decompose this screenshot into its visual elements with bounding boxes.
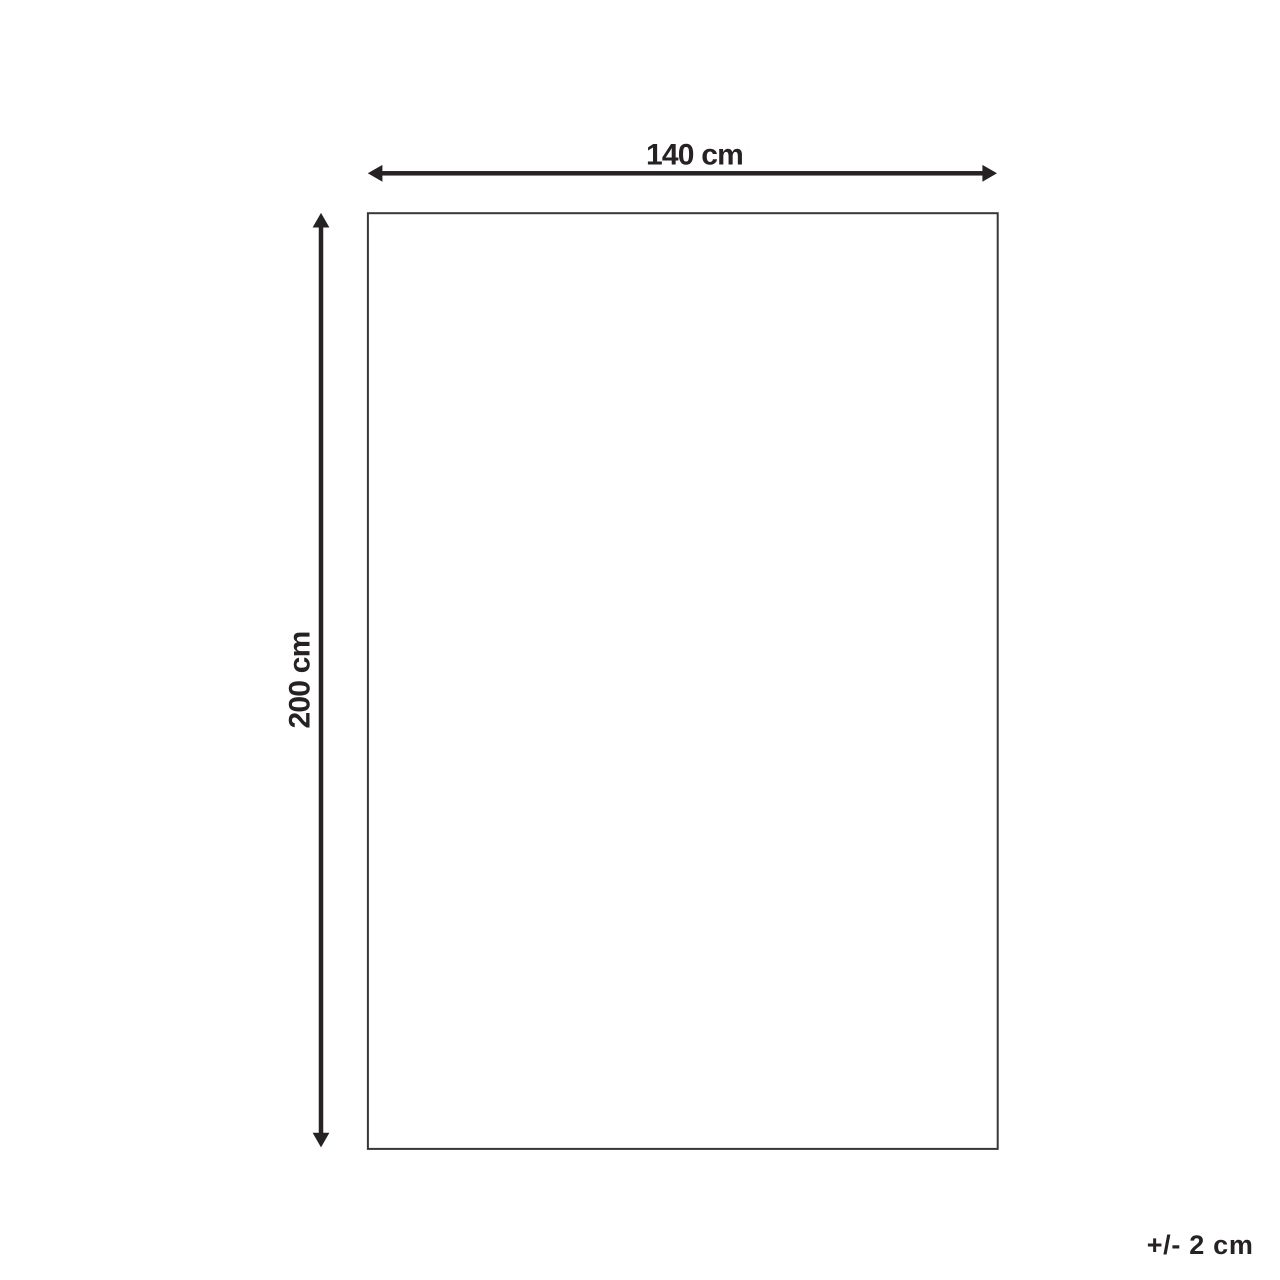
svg-text:140 cm: 140 cm — [646, 139, 743, 172]
svg-text:200 cm: 200 cm — [284, 632, 317, 729]
svg-text:+/- 2 cm: +/- 2 cm — [1147, 1230, 1254, 1260]
